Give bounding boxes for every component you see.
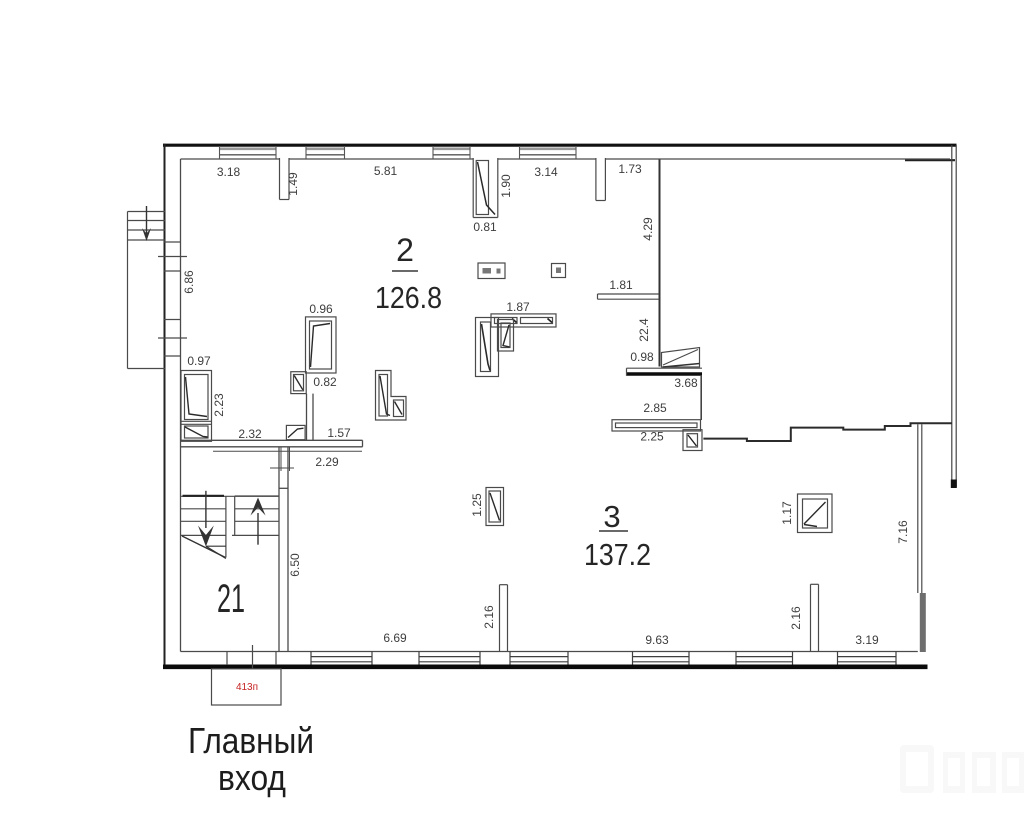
svg-text:3.14: 3.14 (534, 165, 558, 179)
svg-text:6.50: 6.50 (288, 553, 302, 577)
svg-text:0.96: 0.96 (309, 302, 333, 316)
svg-text:2.23: 2.23 (212, 393, 226, 417)
svg-text:22.4: 22.4 (637, 318, 651, 342)
svg-text:1.17: 1.17 (780, 501, 794, 525)
svg-text:1.87: 1.87 (506, 300, 530, 314)
svg-text:5.81: 5.81 (374, 164, 398, 178)
svg-text:Главный: Главный (188, 720, 314, 761)
svg-text:1.90: 1.90 (499, 174, 513, 198)
svg-text:1.57: 1.57 (327, 426, 351, 440)
svg-text:1.25: 1.25 (470, 493, 484, 517)
svg-text:2.32: 2.32 (238, 427, 262, 441)
svg-text:6.69: 6.69 (383, 631, 407, 645)
svg-text:21: 21 (217, 577, 245, 621)
svg-text:1.49: 1.49 (286, 172, 300, 196)
svg-text:2.16: 2.16 (482, 605, 496, 629)
svg-text:0.98: 0.98 (630, 350, 654, 364)
svg-text:0.97: 0.97 (187, 354, 211, 368)
svg-text:0.81: 0.81 (473, 220, 497, 234)
svg-text:137.2: 137.2 (584, 537, 651, 572)
svg-text:2.25: 2.25 (640, 430, 664, 444)
svg-text:126.8: 126.8 (375, 280, 442, 315)
svg-text:9.63: 9.63 (645, 633, 669, 647)
svg-text:вход: вход (218, 757, 286, 798)
svg-text:1.81: 1.81 (609, 278, 633, 292)
svg-text:2.29: 2.29 (315, 455, 339, 469)
svg-text:4.29: 4.29 (641, 217, 655, 241)
svg-text:3.68: 3.68 (674, 376, 698, 390)
svg-text:3.19: 3.19 (855, 633, 879, 647)
svg-text:6.86: 6.86 (182, 270, 196, 294)
svg-text:0.82: 0.82 (313, 375, 337, 389)
svg-text:2.85: 2.85 (643, 401, 667, 415)
svg-text:3: 3 (603, 499, 620, 534)
svg-text:7.16: 7.16 (896, 520, 910, 544)
svg-text:1.73: 1.73 (618, 162, 642, 176)
svg-text:3.18: 3.18 (217, 165, 241, 179)
svg-text:413п: 413п (236, 682, 258, 693)
svg-text:2: 2 (396, 232, 414, 268)
svg-text:2.16: 2.16 (789, 606, 803, 630)
